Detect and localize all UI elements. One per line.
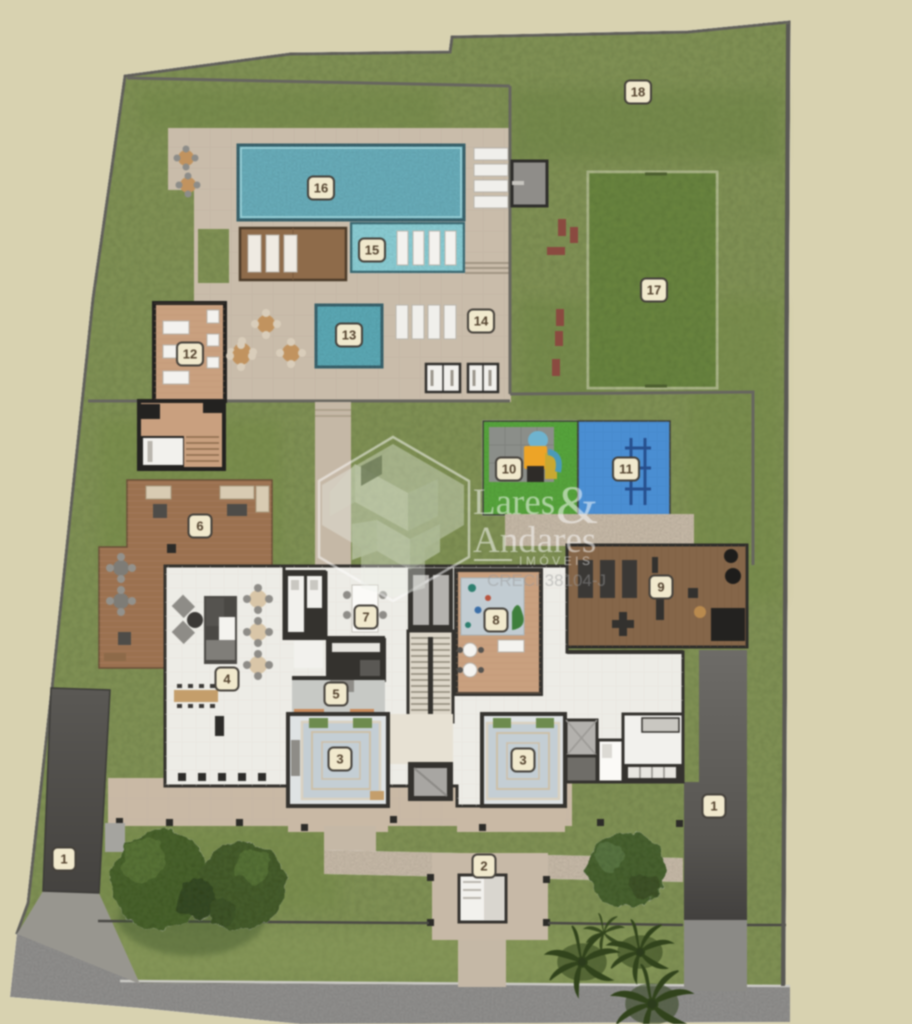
- svg-text:10: 10: [502, 462, 516, 477]
- svg-text:14: 14: [474, 314, 489, 329]
- svg-text:11: 11: [619, 462, 633, 477]
- svg-text:12: 12: [183, 347, 197, 362]
- svg-text:16: 16: [314, 181, 328, 196]
- svg-text:5: 5: [332, 687, 339, 702]
- svg-text:13: 13: [342, 328, 356, 343]
- svg-text:7: 7: [362, 610, 369, 625]
- svg-text:15: 15: [365, 243, 379, 258]
- svg-text:9: 9: [657, 580, 664, 595]
- svg-text:Lares: Lares: [473, 482, 555, 523]
- svg-text:3: 3: [519, 753, 526, 768]
- svg-text:18: 18: [631, 85, 645, 100]
- svg-text:1: 1: [60, 852, 67, 867]
- svg-text:1: 1: [710, 799, 717, 814]
- svg-text:4: 4: [223, 672, 231, 687]
- svg-text:17: 17: [647, 283, 661, 298]
- svg-text:6: 6: [196, 519, 203, 534]
- svg-text:IMÓVEIS: IMÓVEIS: [519, 553, 594, 568]
- svg-text:8: 8: [492, 613, 499, 628]
- svg-text:CRECI 38104-J: CRECI 38104-J: [487, 571, 606, 590]
- svg-text:2: 2: [480, 859, 487, 874]
- svg-text:3: 3: [336, 752, 343, 767]
